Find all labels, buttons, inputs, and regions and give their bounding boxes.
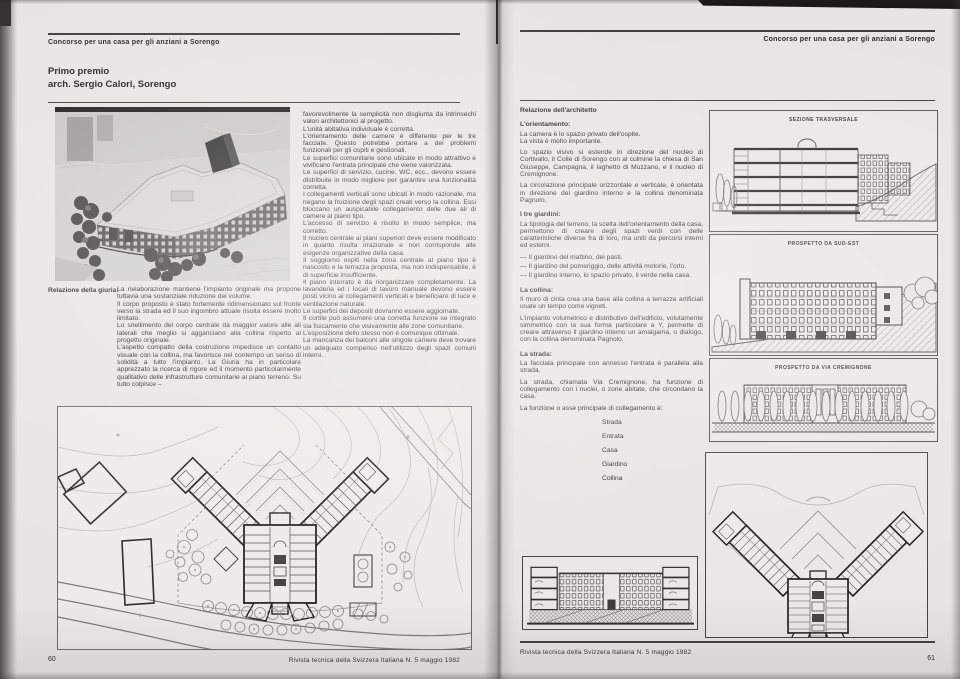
paragraph: L'impianto volumetrico e distributivo de… (520, 315, 703, 344)
paragraph: Le superfici comunitarie sono ubicate in… (303, 155, 476, 170)
elevation-trees-left (714, 315, 736, 345)
scan-edge-top (0, 0, 960, 4)
pergola (354, 555, 372, 587)
scan-edge-left (0, 0, 17, 679)
paragraph: L'orientamento delle camere è differente… (303, 133, 476, 155)
list-item: — Il giardino del mattino, dei pasti. (520, 254, 703, 261)
running-head-left: Concorso per una casa per gli anziani a … (48, 39, 220, 46)
architect-name: arch. Sergio Calori, Sorengo (48, 79, 176, 92)
pool-diamond (214, 547, 238, 571)
photo-top-bar (55, 107, 290, 112)
plan-terraces (780, 497, 856, 569)
paragraph: L'esposizione dello stesso non è comunqu… (303, 330, 476, 337)
article-title: Primo premio arch. Sergio Calori, Soreng… (48, 66, 176, 91)
page-number-left: 60 (48, 656, 56, 663)
photo-background-building-2 (97, 115, 113, 141)
cross-section-figure: SEZIONE TRASVERSALE (709, 110, 938, 232)
top-rule-left (48, 33, 460, 35)
section-trees (713, 174, 737, 211)
list-item: — Il giardino del pomeriggio, delle atti… (520, 263, 703, 270)
paragraph: Il corpo proposto è stato fortemente rid… (117, 301, 301, 323)
axis-item: Collina (602, 472, 703, 486)
paragraph: La strada, chiamata Via Cremignone, ha f… (520, 379, 703, 401)
street-elevation-drawing (710, 359, 937, 441)
axis-item: Strada (602, 416, 703, 430)
paragraph: La tipologia del terreno, la scelta dell… (520, 221, 703, 250)
paragraph: L'unità abitativa individuale è corretta… (303, 126, 476, 133)
paragraph: Lo snellimento del corpo centrale dà mag… (117, 322, 301, 344)
southeast-elevation-drawing (710, 235, 937, 355)
mid-rule-right (520, 100, 935, 101)
section-heading: I tre giardini: (520, 211, 703, 218)
list-item: — Il giardino interno, lo spazio privato… (520, 272, 703, 279)
site-plan-drawing (57, 406, 472, 650)
street-ground (714, 423, 933, 432)
paragraph: Il piano interrato è da riorganizzare co… (303, 279, 476, 308)
page-gutter-line (496, 0, 498, 44)
paragraph: Il cortile può assumere una corretta fun… (303, 315, 476, 330)
section-heading: La collina: (520, 287, 703, 294)
paragraph: La facciata principale con annesso l'ent… (520, 360, 703, 375)
terraced-garden (236, 451, 324, 519)
photo-background-building (67, 117, 93, 161)
paragraph: La funzione o asse principale di collega… (520, 405, 703, 412)
mid-rule-left (48, 102, 460, 103)
axis-item: Giardino (602, 458, 703, 472)
cross-section-drawing (710, 111, 937, 231)
paragraph: La rielaborazione mantiene l'impianto or… (117, 286, 301, 301)
building-plan (171, 458, 388, 621)
paragraph: favorevolmente la semplicità non disgiun… (303, 111, 476, 126)
page-gutter (484, 0, 514, 679)
courtyard-facade (559, 573, 664, 609)
street-elevation-figure: PROSPETTO DA VIA CREMIGNONE (709, 358, 938, 442)
courtyard-section-figure (522, 556, 698, 630)
journal-footer-left: Rivista tecnica della Svizzera Italiana … (230, 657, 460, 664)
street-trees-row (718, 391, 935, 421)
model-photo-drawing (55, 107, 290, 281)
paragraph: La mancanza dei balconi alle singole cam… (303, 337, 476, 359)
courtyard-ground (529, 610, 692, 624)
paragraph: Le superfici di servizio, cucine, WC, ec… (303, 169, 476, 191)
paragraph: Il nucleo centrale ai piani superiori de… (303, 235, 476, 257)
magazine-spread: Concorso per una casa per gli anziani a … (0, 0, 960, 679)
floor-plan-drawing (706, 453, 927, 637)
axis-item: Casa (602, 444, 703, 458)
paragraph: La vista è molto importante. (520, 138, 703, 145)
drawing-label: PROSPETTO DA SUD-EST (710, 241, 937, 247)
running-head-right: Concorso per una casa per gli anziani a … (520, 36, 935, 43)
jury-report-column-2: favorevolmente la semplicità non disgiun… (303, 111, 476, 359)
drawing-label: PROSPETTO DA VIA CREMIGNONE (710, 365, 937, 371)
paragraph: Il soggiorno ospiti nella zona centrale … (303, 257, 476, 279)
paragraph: I collegamenti verticali sono ubicati in… (303, 191, 476, 220)
paragraph: La circolazione principale orizzontale e… (520, 182, 703, 204)
plan-building (713, 512, 923, 637)
paragraph: Il muro di cinta crea una base alla coll… (520, 296, 703, 311)
courtyard-section-drawing (523, 557, 697, 629)
top-rule-right (520, 30, 935, 32)
paragraph: L'accesso di servizio è risolto in modo … (303, 220, 476, 235)
model-photo (55, 107, 290, 281)
paragraph: L'aspetto compatto della costruzione imp… (117, 344, 301, 388)
paragraph: Lo spazio visivo si estende in direzione… (520, 149, 703, 178)
southeast-elevation-figure: PROSPETTO DA SUD-EST (709, 234, 938, 356)
page-number-right: 61 (895, 655, 935, 662)
paragraph: La camera è lo spazio privato dell'ospit… (520, 131, 703, 138)
connection-axis-list: Strada Entrata Casa Giardino Collina (520, 416, 703, 486)
scan-edge-right (951, 0, 960, 679)
hill-road (380, 407, 471, 509)
section-heading: L'orientamento: (520, 121, 703, 128)
prize-title: Primo premio (48, 66, 176, 79)
journal-footer-right: Rivista tecnica della Svizzera Italiana … (520, 649, 691, 656)
footer-rule-right (520, 641, 935, 643)
section-heading: La strada: (520, 351, 703, 358)
scan-edge-bottom (0, 672, 960, 679)
floor-plan-figure (705, 452, 928, 638)
jury-report-column-1: La rielaborazione mantiene l'impianto or… (117, 286, 301, 388)
drawing-label: SEZIONE TRASVERSALE (710, 117, 937, 123)
axis-item: Entrata (602, 430, 703, 444)
architect-report-title: Relazione dell'architetto (520, 107, 703, 114)
neighbor-buildings (58, 462, 154, 605)
architect-report-column: Relazione dell'architetto L'orientamento… (520, 107, 703, 486)
site-plan-svg (58, 407, 471, 649)
jury-report-label: Relazione della giuria: (48, 287, 119, 294)
paragraph: Le superfici dei depositi dovranno esser… (303, 308, 476, 315)
